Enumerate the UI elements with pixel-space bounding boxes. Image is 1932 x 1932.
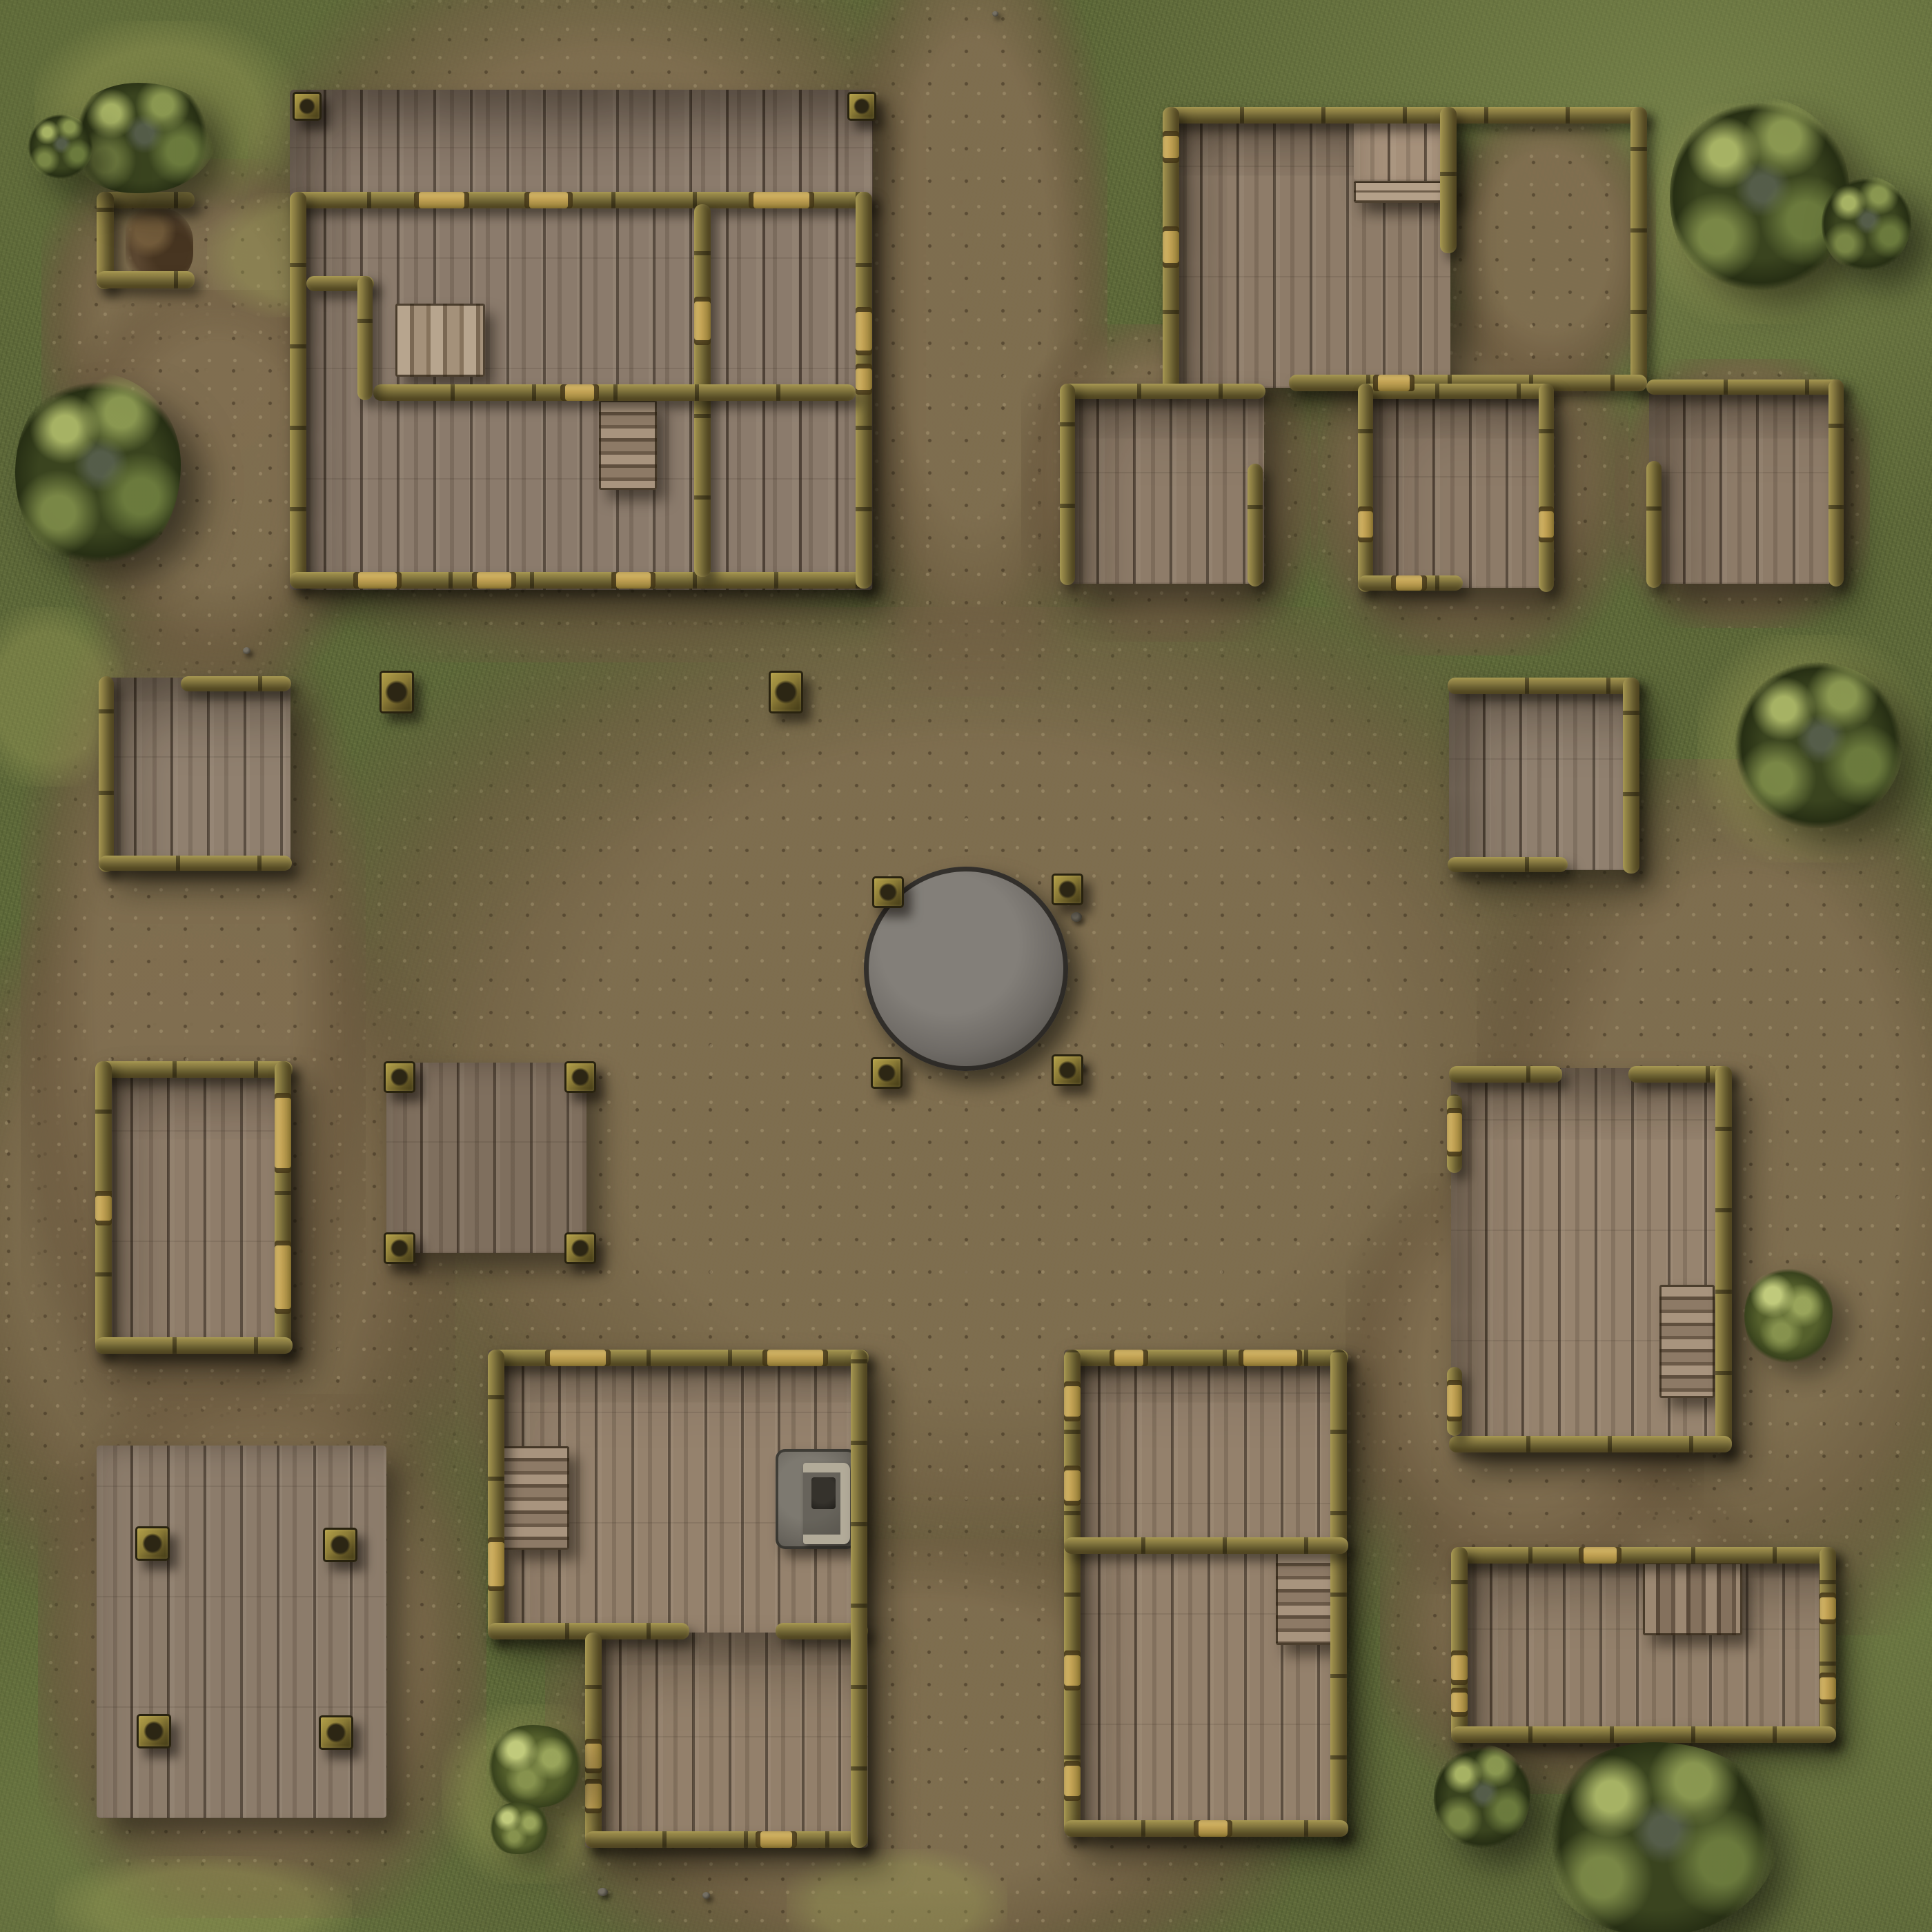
wooden-post bbox=[871, 1057, 903, 1089]
door-frame bbox=[472, 572, 516, 589]
log-wall bbox=[357, 276, 373, 400]
door-frame bbox=[560, 384, 599, 401]
forge-hearth bbox=[776, 1449, 857, 1549]
log-wall bbox=[1330, 1350, 1347, 1837]
rock bbox=[992, 11, 998, 17]
log-wall bbox=[95, 1337, 293, 1354]
building-floor bbox=[290, 90, 873, 590]
stairs bbox=[502, 1446, 569, 1550]
log-wall bbox=[1060, 384, 1265, 399]
door-frame bbox=[1820, 1673, 1836, 1704]
building-floor bbox=[585, 1633, 868, 1848]
forge-opening bbox=[811, 1477, 836, 1509]
log-wall bbox=[1163, 107, 1647, 124]
door-frame bbox=[1064, 1381, 1081, 1421]
log-wall bbox=[99, 676, 114, 872]
wooden-post bbox=[293, 92, 322, 121]
stairs bbox=[599, 400, 657, 490]
door-frame bbox=[275, 1241, 291, 1314]
door-frame bbox=[1163, 226, 1179, 268]
door-frame bbox=[275, 1093, 291, 1173]
door-frame bbox=[1064, 1761, 1081, 1801]
door-frame bbox=[762, 1350, 828, 1366]
building-floor bbox=[100, 678, 290, 868]
log-wall bbox=[1828, 379, 1844, 586]
log-wall bbox=[1440, 107, 1457, 253]
wooden-post bbox=[323, 1528, 357, 1562]
log-wall bbox=[1623, 678, 1639, 874]
log-wall bbox=[1060, 384, 1075, 585]
log-wall bbox=[1358, 384, 1373, 592]
log-wall bbox=[97, 271, 195, 288]
log-wall bbox=[1630, 107, 1647, 391]
door-frame bbox=[95, 1191, 112, 1225]
door-frame bbox=[1163, 131, 1179, 163]
log-wall bbox=[1448, 857, 1568, 872]
log-wall bbox=[1248, 464, 1263, 586]
door-frame bbox=[585, 1779, 602, 1813]
stairs bbox=[395, 304, 485, 377]
building-floor bbox=[97, 1063, 291, 1352]
building-floor bbox=[97, 1446, 386, 1818]
wooden-post bbox=[319, 1715, 353, 1750]
wooden-post bbox=[384, 1061, 415, 1093]
stairs bbox=[1643, 1562, 1742, 1635]
wooden-post bbox=[384, 1232, 415, 1264]
wooden-post bbox=[564, 1232, 596, 1264]
building-floor bbox=[1649, 385, 1840, 584]
door-frame bbox=[545, 1350, 611, 1366]
building-floor bbox=[386, 1063, 586, 1253]
door-frame bbox=[585, 1739, 602, 1773]
door-frame bbox=[1194, 1820, 1232, 1837]
door-frame bbox=[1064, 1466, 1081, 1506]
log-wall bbox=[1064, 1537, 1348, 1554]
log-wall bbox=[181, 676, 291, 691]
wooden-post bbox=[1052, 1054, 1083, 1086]
log-wall bbox=[95, 1061, 293, 1078]
log-wall bbox=[488, 1350, 504, 1639]
door-frame bbox=[1820, 1593, 1836, 1624]
rock bbox=[598, 1888, 608, 1896]
door-frame bbox=[1391, 575, 1427, 591]
dirt-patch bbox=[1442, 114, 1656, 397]
door-frame bbox=[749, 192, 814, 208]
log-wall bbox=[1451, 1547, 1836, 1564]
rock bbox=[1071, 912, 1082, 922]
wooden-post bbox=[137, 1714, 171, 1748]
log-wall bbox=[1064, 1350, 1348, 1366]
door-frame bbox=[1239, 1350, 1302, 1366]
building-floor bbox=[1354, 115, 1450, 181]
log-wall bbox=[1539, 384, 1554, 592]
door-frame bbox=[1451, 1650, 1468, 1685]
moss-patch bbox=[55, 1856, 352, 1932]
door-frame bbox=[611, 572, 655, 589]
log-wall bbox=[1715, 1066, 1732, 1452]
log-wall bbox=[290, 192, 306, 589]
building-floor bbox=[1449, 680, 1637, 870]
log-wall bbox=[1646, 461, 1662, 588]
wooden-post bbox=[564, 1061, 596, 1093]
wooden-post bbox=[872, 876, 904, 908]
tree bbox=[1539, 1742, 1780, 1932]
door-frame bbox=[1579, 1547, 1621, 1564]
door-frame bbox=[756, 1831, 797, 1848]
log-wall bbox=[99, 856, 292, 871]
wooden-post bbox=[135, 1526, 170, 1561]
door-frame bbox=[856, 364, 872, 395]
tree bbox=[1434, 1744, 1530, 1851]
stairs bbox=[1276, 1551, 1337, 1645]
wooden-post bbox=[847, 92, 876, 121]
log-wall bbox=[1449, 1066, 1562, 1083]
door-frame bbox=[694, 297, 711, 345]
door-frame bbox=[856, 307, 872, 355]
log-wall bbox=[1646, 379, 1844, 395]
log-wall bbox=[373, 384, 856, 401]
door-frame bbox=[1539, 506, 1554, 542]
log-wall bbox=[1448, 678, 1639, 694]
door-frame bbox=[488, 1537, 504, 1591]
door-frame bbox=[1373, 375, 1414, 391]
door-frame bbox=[1358, 506, 1373, 542]
wooden-post bbox=[769, 671, 803, 713]
door-frame bbox=[524, 192, 573, 208]
door-frame bbox=[414, 192, 469, 208]
village-battle-map bbox=[0, 0, 1932, 1932]
log-wall bbox=[851, 1350, 867, 1848]
log-wall bbox=[1820, 1547, 1836, 1743]
log-wall bbox=[1449, 1436, 1732, 1452]
door-frame bbox=[1110, 1350, 1148, 1366]
tree bbox=[1822, 176, 1911, 273]
moss-patch bbox=[787, 1849, 1007, 1932]
rock bbox=[243, 647, 250, 654]
door-frame bbox=[1451, 1688, 1468, 1717]
door-frame bbox=[1447, 1380, 1462, 1421]
building-floor bbox=[1063, 388, 1264, 584]
log-wall bbox=[585, 1831, 868, 1848]
door-frame bbox=[1447, 1108, 1462, 1156]
door-frame bbox=[353, 572, 402, 589]
wooden-post bbox=[1052, 874, 1083, 905]
door-frame bbox=[1064, 1650, 1081, 1690]
log-wall bbox=[1451, 1726, 1836, 1743]
wooden-post bbox=[379, 671, 414, 713]
stairs bbox=[1659, 1285, 1715, 1398]
building-floor bbox=[1362, 388, 1550, 588]
rock bbox=[702, 1892, 710, 1899]
